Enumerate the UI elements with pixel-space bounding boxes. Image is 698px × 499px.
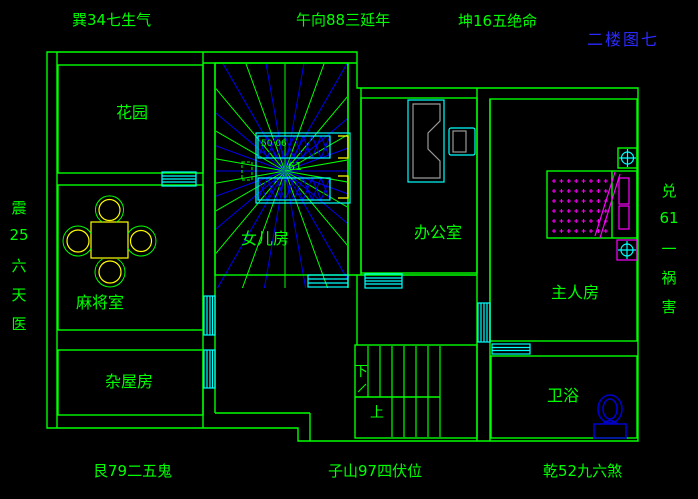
pillow-top: [619, 178, 629, 204]
mahjong-table: [91, 222, 128, 258]
stair-label-up: 上: [370, 406, 384, 421]
windows: [162, 172, 530, 388]
window-mahjong: [204, 296, 215, 335]
window-office: [365, 274, 402, 288]
annotation-right-vertical: 兑 61 一 祸 害: [656, 180, 682, 325]
staircase: [355, 345, 477, 438]
window-garden: [162, 172, 196, 186]
window-landing: [478, 303, 490, 342]
bed-number-top: 50 06: [261, 140, 287, 150]
stair-treads: [368, 346, 440, 437]
floorplan-drawing: 巽34七生气 午向88三延年 坤16五绝命 二楼图七 震 25 六 天 医 兑 …: [0, 0, 698, 499]
window-storage: [204, 350, 215, 388]
annotation-top-right: 坤16五绝命: [458, 13, 537, 30]
room-label-office: 办公室: [414, 224, 462, 242]
window-bath: [492, 344, 530, 354]
chair-left: [67, 230, 89, 252]
chair-top: [99, 200, 120, 221]
annotation-bottom-center: 子山97四伏位: [328, 463, 422, 480]
annotation-bottom-right: 乾52九六煞: [543, 463, 622, 480]
bedside-unit-bottom: [338, 176, 348, 198]
drawing-title: 二楼图七: [587, 31, 659, 49]
bed-number-mid: 61: [288, 161, 302, 173]
office-desk-set: [408, 100, 475, 182]
lamp-symbol-top: [618, 148, 637, 168]
room-label-daughter: 女儿房: [241, 230, 289, 248]
stair-label-down: 下: [354, 365, 368, 380]
room-master: [490, 99, 637, 341]
master-bed: [547, 171, 637, 238]
chair-right: [131, 231, 152, 252]
toilet-icon: [594, 395, 626, 438]
annotation-top-left: 巽34七生气: [72, 12, 151, 29]
annotation-top-center: 午向88三延年: [296, 12, 390, 29]
annotation-left-vertical: 震 25 六 天 医: [6, 197, 32, 342]
lamp-symbol-bottom: [617, 240, 637, 260]
annotation-bottom-left: 艮79二五鬼: [93, 463, 172, 480]
room-label-mahjong: 麻将室: [76, 294, 124, 312]
chair-bottom: [99, 261, 121, 283]
room-label-bath: 卫浴: [547, 387, 579, 405]
window-daughter: [308, 275, 348, 287]
room-label-garden: 花园: [116, 104, 148, 122]
room-label-storage: 杂屋房: [105, 373, 153, 391]
room-label-master: 主人房: [551, 284, 599, 302]
floorplan-canvas: [0, 0, 698, 499]
pillow-bottom: [619, 206, 629, 229]
mahjong-table-set: [63, 196, 156, 287]
stair-direction-arrow: [358, 384, 366, 392]
room-office: [361, 98, 477, 273]
master-bed-dots: [552, 179, 608, 233]
